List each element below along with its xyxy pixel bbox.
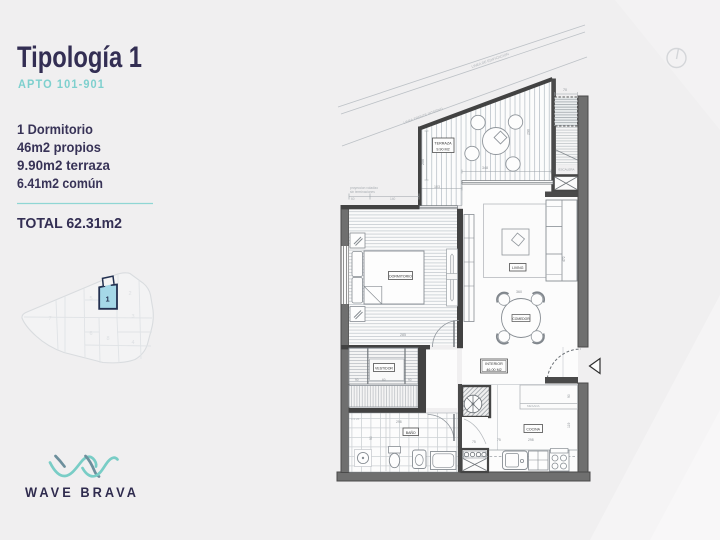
svg-text:sin terminaciones: sin terminaciones: [350, 190, 375, 194]
svg-text:75: 75: [472, 440, 476, 444]
svg-text:COMEDOR: COMEDOR: [512, 317, 530, 321]
svg-text:90: 90: [567, 394, 571, 398]
svg-text:TERRAZA: TERRAZA: [434, 142, 452, 146]
svg-text:5: 5: [89, 296, 92, 302]
svg-text:Tipología 1: Tipología 1: [17, 41, 142, 74]
svg-text:VESTIDOR: VESTIDOR: [375, 366, 393, 370]
svg-text:8: 8: [106, 336, 109, 342]
svg-text:75: 75: [497, 438, 501, 442]
svg-text:1 Dormitorio: 1 Dormitorio: [17, 122, 93, 137]
svg-text:9.90m2 terraza: 9.90m2 terraza: [17, 158, 110, 173]
svg-text:WAVE BRAVA: WAVE BRAVA: [25, 485, 139, 500]
svg-text:360: 360: [516, 290, 522, 294]
svg-text:296: 296: [527, 129, 531, 135]
svg-text:7: 7: [48, 316, 51, 322]
svg-text:90: 90: [355, 378, 359, 382]
svg-text:APTO 101-901: APTO 101-901: [18, 77, 105, 91]
svg-text:298: 298: [396, 420, 402, 424]
svg-text:2: 2: [128, 291, 131, 297]
svg-text:119: 119: [567, 422, 571, 428]
svg-text:46.00 M2: 46.00 M2: [486, 368, 501, 372]
svg-text:h:2.26: h:2.26: [351, 417, 360, 421]
svg-text:ESCALERA: ESCALERA: [558, 168, 574, 172]
svg-text:BAÑO: BAÑO: [406, 430, 416, 435]
svg-text:1: 1: [106, 295, 110, 304]
svg-text:46m2 propios: 46m2 propios: [17, 140, 101, 155]
svg-text:90: 90: [408, 378, 412, 382]
svg-text:348: 348: [482, 166, 488, 170]
svg-text:298: 298: [528, 438, 534, 442]
svg-text:90: 90: [369, 436, 373, 440]
svg-text:COCINA: COCINA: [526, 427, 540, 431]
svg-text:TOTAL 62.31m2: TOTAL 62.31m2: [17, 216, 122, 232]
svg-text:140: 140: [390, 197, 396, 201]
svg-text:60: 60: [382, 378, 386, 382]
svg-text:3: 3: [131, 314, 134, 320]
svg-text:70: 70: [563, 88, 567, 92]
svg-text:4: 4: [131, 340, 134, 346]
svg-text:472: 472: [562, 256, 566, 262]
svg-text:285: 285: [400, 333, 406, 337]
svg-text:INTERIOR: INTERIOR: [485, 362, 503, 366]
svg-text:9.90 M2: 9.90 M2: [436, 148, 449, 152]
svg-text:LIVING: LIVING: [512, 266, 524, 270]
svg-text:6.41m2 común: 6.41m2 común: [17, 176, 103, 191]
svg-text:6: 6: [89, 331, 92, 337]
svg-text:MESADA: MESADA: [527, 404, 540, 408]
svg-text:DORMITORIO: DORMITORIO: [389, 274, 412, 278]
svg-text:60: 60: [351, 197, 355, 201]
